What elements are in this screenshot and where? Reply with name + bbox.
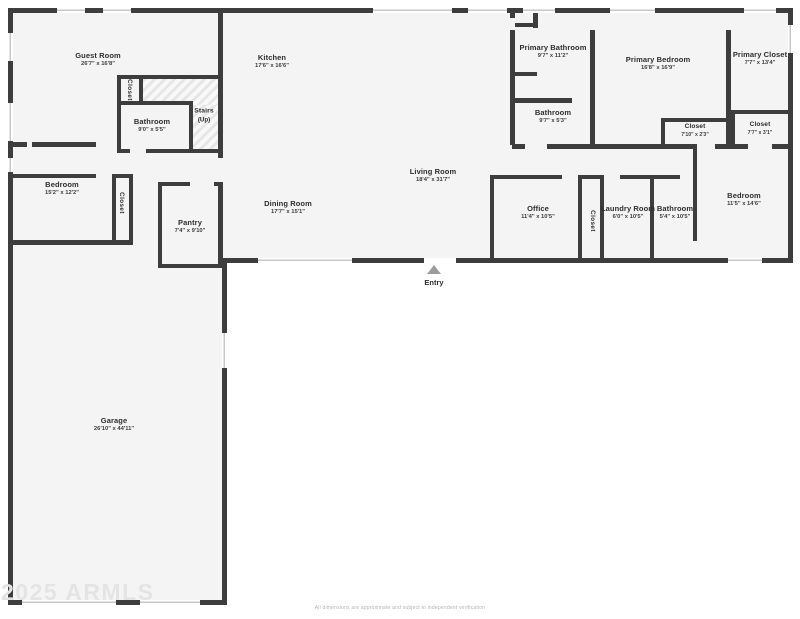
room-label-laundry-room: Laundry Room 6'0" x 10'5" bbox=[601, 204, 655, 222]
window bbox=[523, 8, 555, 13]
wall-segment bbox=[139, 79, 143, 105]
room-dims: 6'0" x 10'5" bbox=[601, 215, 655, 222]
room-name: Bedroom bbox=[727, 191, 761, 200]
wall-segment bbox=[510, 98, 572, 103]
room-dims: 7'4" x 9'10" bbox=[175, 229, 206, 236]
wall-segment bbox=[8, 244, 13, 605]
wall-segment bbox=[726, 30, 731, 144]
room-dims: 9'7" x 5'3" bbox=[535, 119, 571, 126]
wall-segment bbox=[652, 175, 680, 179]
room-name: Guest Room bbox=[75, 51, 121, 60]
room-label-left-bedroom: Bedroom 15'2" x 12'2" bbox=[45, 180, 79, 198]
room-dims: 7'7" x 3'1" bbox=[748, 130, 773, 137]
room-label-primary-bathroom: Primary Bathroom 9'7" x 11'2" bbox=[519, 43, 586, 61]
floor-area bbox=[8, 8, 793, 263]
wall-segment bbox=[117, 101, 193, 105]
wall-segment bbox=[117, 75, 121, 153]
room-name: Closet bbox=[681, 123, 709, 131]
window bbox=[468, 8, 507, 13]
wall-segment bbox=[547, 144, 661, 149]
room-label-hall-closet: Closet bbox=[588, 210, 596, 232]
window bbox=[728, 258, 762, 263]
room-label-guest-closet: Closet bbox=[125, 79, 133, 101]
wall-segment bbox=[661, 118, 726, 122]
window bbox=[8, 33, 13, 61]
room-label-dining-room: Dining Room 17'7" x 15'1" bbox=[264, 199, 312, 217]
room-name: Bedroom bbox=[45, 180, 79, 189]
room-label-right-bedroom: Bedroom 11'5" x 14'6" bbox=[727, 191, 761, 209]
room-name: Primary Closet bbox=[733, 50, 787, 59]
wall-segment bbox=[661, 118, 665, 144]
wall-segment bbox=[661, 144, 697, 149]
room-dims: 15'2" x 12'2" bbox=[45, 191, 79, 198]
wall-segment bbox=[693, 149, 697, 241]
room-label-hall-bathroom: Bathroom 5'4" x 10'5" bbox=[657, 204, 693, 222]
wall-segment bbox=[490, 175, 494, 262]
room-label-closet-a: Closet 7'10" x 2'3" bbox=[681, 123, 709, 139]
room-dims: 7'10" x 2'3" bbox=[681, 132, 709, 139]
room-label-closet-b: Closet 7'7" x 3'1" bbox=[748, 121, 773, 137]
room-name: Kitchen bbox=[255, 53, 289, 62]
wall-segment bbox=[726, 110, 793, 114]
window bbox=[744, 8, 776, 13]
room-label-guest-bathroom: Bathroom 9'0" x 5'5" bbox=[134, 117, 170, 135]
room-name: Closet bbox=[125, 79, 133, 101]
wall-segment bbox=[731, 114, 735, 144]
room-dims: 7'7" x 13'4" bbox=[733, 61, 787, 68]
room-label-upper-bathroom: Bathroom 9'7" x 5'3" bbox=[535, 108, 571, 126]
room-label-kitchen: Kitchen 17'6" x 16'6" bbox=[255, 53, 289, 71]
wall-segment bbox=[510, 30, 515, 145]
room-label-primary-bedroom: Primary Bedroom 16'8" x 16'9" bbox=[626, 55, 690, 73]
wall-segment bbox=[158, 264, 227, 268]
room-name: Bathroom bbox=[535, 108, 571, 117]
window bbox=[222, 333, 227, 368]
room-dims: 9'7" x 11'2" bbox=[519, 54, 586, 61]
room-dims: 5'4" x 10'5" bbox=[657, 215, 693, 222]
room-name: Pantry bbox=[175, 218, 206, 227]
wall-segment bbox=[8, 174, 96, 178]
wall-segment bbox=[578, 175, 582, 262]
room-dims: 17'7" x 15'1" bbox=[264, 210, 312, 217]
room-dims: 26'7" x 16'8" bbox=[75, 62, 121, 69]
window bbox=[610, 8, 655, 13]
room-label-garage: Garage 26'10" x 44'11" bbox=[94, 416, 134, 434]
wall-segment bbox=[158, 182, 162, 268]
room-dims: 18'4" x 31'7" bbox=[410, 178, 457, 185]
room-label-living-room: Living Room 18'4" x 31'7" bbox=[410, 167, 457, 185]
room-name: Dining Room bbox=[264, 199, 312, 208]
wall-segment bbox=[715, 144, 748, 149]
room-label-pantry: Pantry 7'4" x 9'10" bbox=[175, 218, 206, 236]
room-label-primary-closet: Primary Closet 7'7" x 13'4" bbox=[733, 50, 787, 68]
wall-segment bbox=[189, 105, 193, 153]
window bbox=[8, 158, 13, 172]
entry-opening bbox=[424, 258, 456, 263]
room-name: Bathroom bbox=[657, 204, 693, 213]
wall-segment bbox=[112, 178, 116, 244]
wall-segment bbox=[146, 149, 218, 153]
window bbox=[258, 258, 352, 263]
wall-segment bbox=[490, 175, 562, 179]
wall-segment bbox=[218, 182, 223, 268]
floor-plan: Guest Room 26'7" x 16'8" Closet Bathroom… bbox=[0, 0, 800, 619]
room-label-stairs: Stairs (Up) bbox=[194, 107, 214, 124]
entry-arrow-icon bbox=[427, 265, 441, 274]
wall-segment bbox=[590, 30, 595, 144]
room-dims: 11'4" x 10'5" bbox=[521, 215, 555, 222]
room-dims: 16'8" x 16'9" bbox=[626, 66, 690, 73]
wall-segment bbox=[112, 174, 133, 178]
wall-segment bbox=[214, 182, 222, 186]
wall-segment bbox=[158, 182, 190, 186]
window bbox=[103, 8, 131, 13]
room-name: Office bbox=[521, 204, 555, 213]
window bbox=[57, 8, 85, 13]
watermark: 2025 ARMLS bbox=[1, 579, 154, 606]
room-name: Closet bbox=[117, 192, 125, 214]
room-dims: 17'6" x 16'6" bbox=[255, 64, 289, 71]
room-name: Primary Bedroom bbox=[626, 55, 690, 64]
window bbox=[373, 8, 452, 13]
room-label-left-bedroom-closet: Closet bbox=[117, 192, 125, 214]
entry-label: Entry bbox=[424, 278, 443, 287]
room-name: Closet bbox=[748, 121, 773, 129]
room-dims: 11'5" x 14'6" bbox=[727, 202, 761, 209]
room-dims: 26'10" x 44'11" bbox=[94, 427, 134, 434]
room-label-office: Office 11'4" x 10'5" bbox=[521, 204, 555, 222]
room-dims: (Up) bbox=[194, 117, 214, 125]
room-name: Primary Bathroom bbox=[519, 43, 586, 52]
room-name: Garage bbox=[94, 416, 134, 425]
wall-segment bbox=[620, 175, 652, 179]
wall-segment bbox=[578, 175, 604, 179]
room-name: Closet bbox=[588, 210, 596, 232]
wall-segment bbox=[222, 263, 227, 605]
disclaimer-text: All dimensions are approximate and subje… bbox=[315, 605, 485, 611]
wall-segment bbox=[218, 8, 223, 158]
window bbox=[8, 103, 13, 141]
room-name: Bathroom bbox=[134, 117, 170, 126]
wall-segment bbox=[129, 178, 133, 240]
window bbox=[788, 25, 793, 53]
room-label-guest-room: Guest Room 26'7" x 16'8" bbox=[75, 51, 121, 69]
wall-segment bbox=[32, 142, 96, 147]
room-name: Living Room bbox=[410, 167, 457, 176]
room-dims: 9'0" x 5'5" bbox=[134, 128, 170, 135]
room-name: Laundry Room bbox=[601, 204, 655, 213]
room-name: Stairs bbox=[194, 107, 214, 115]
